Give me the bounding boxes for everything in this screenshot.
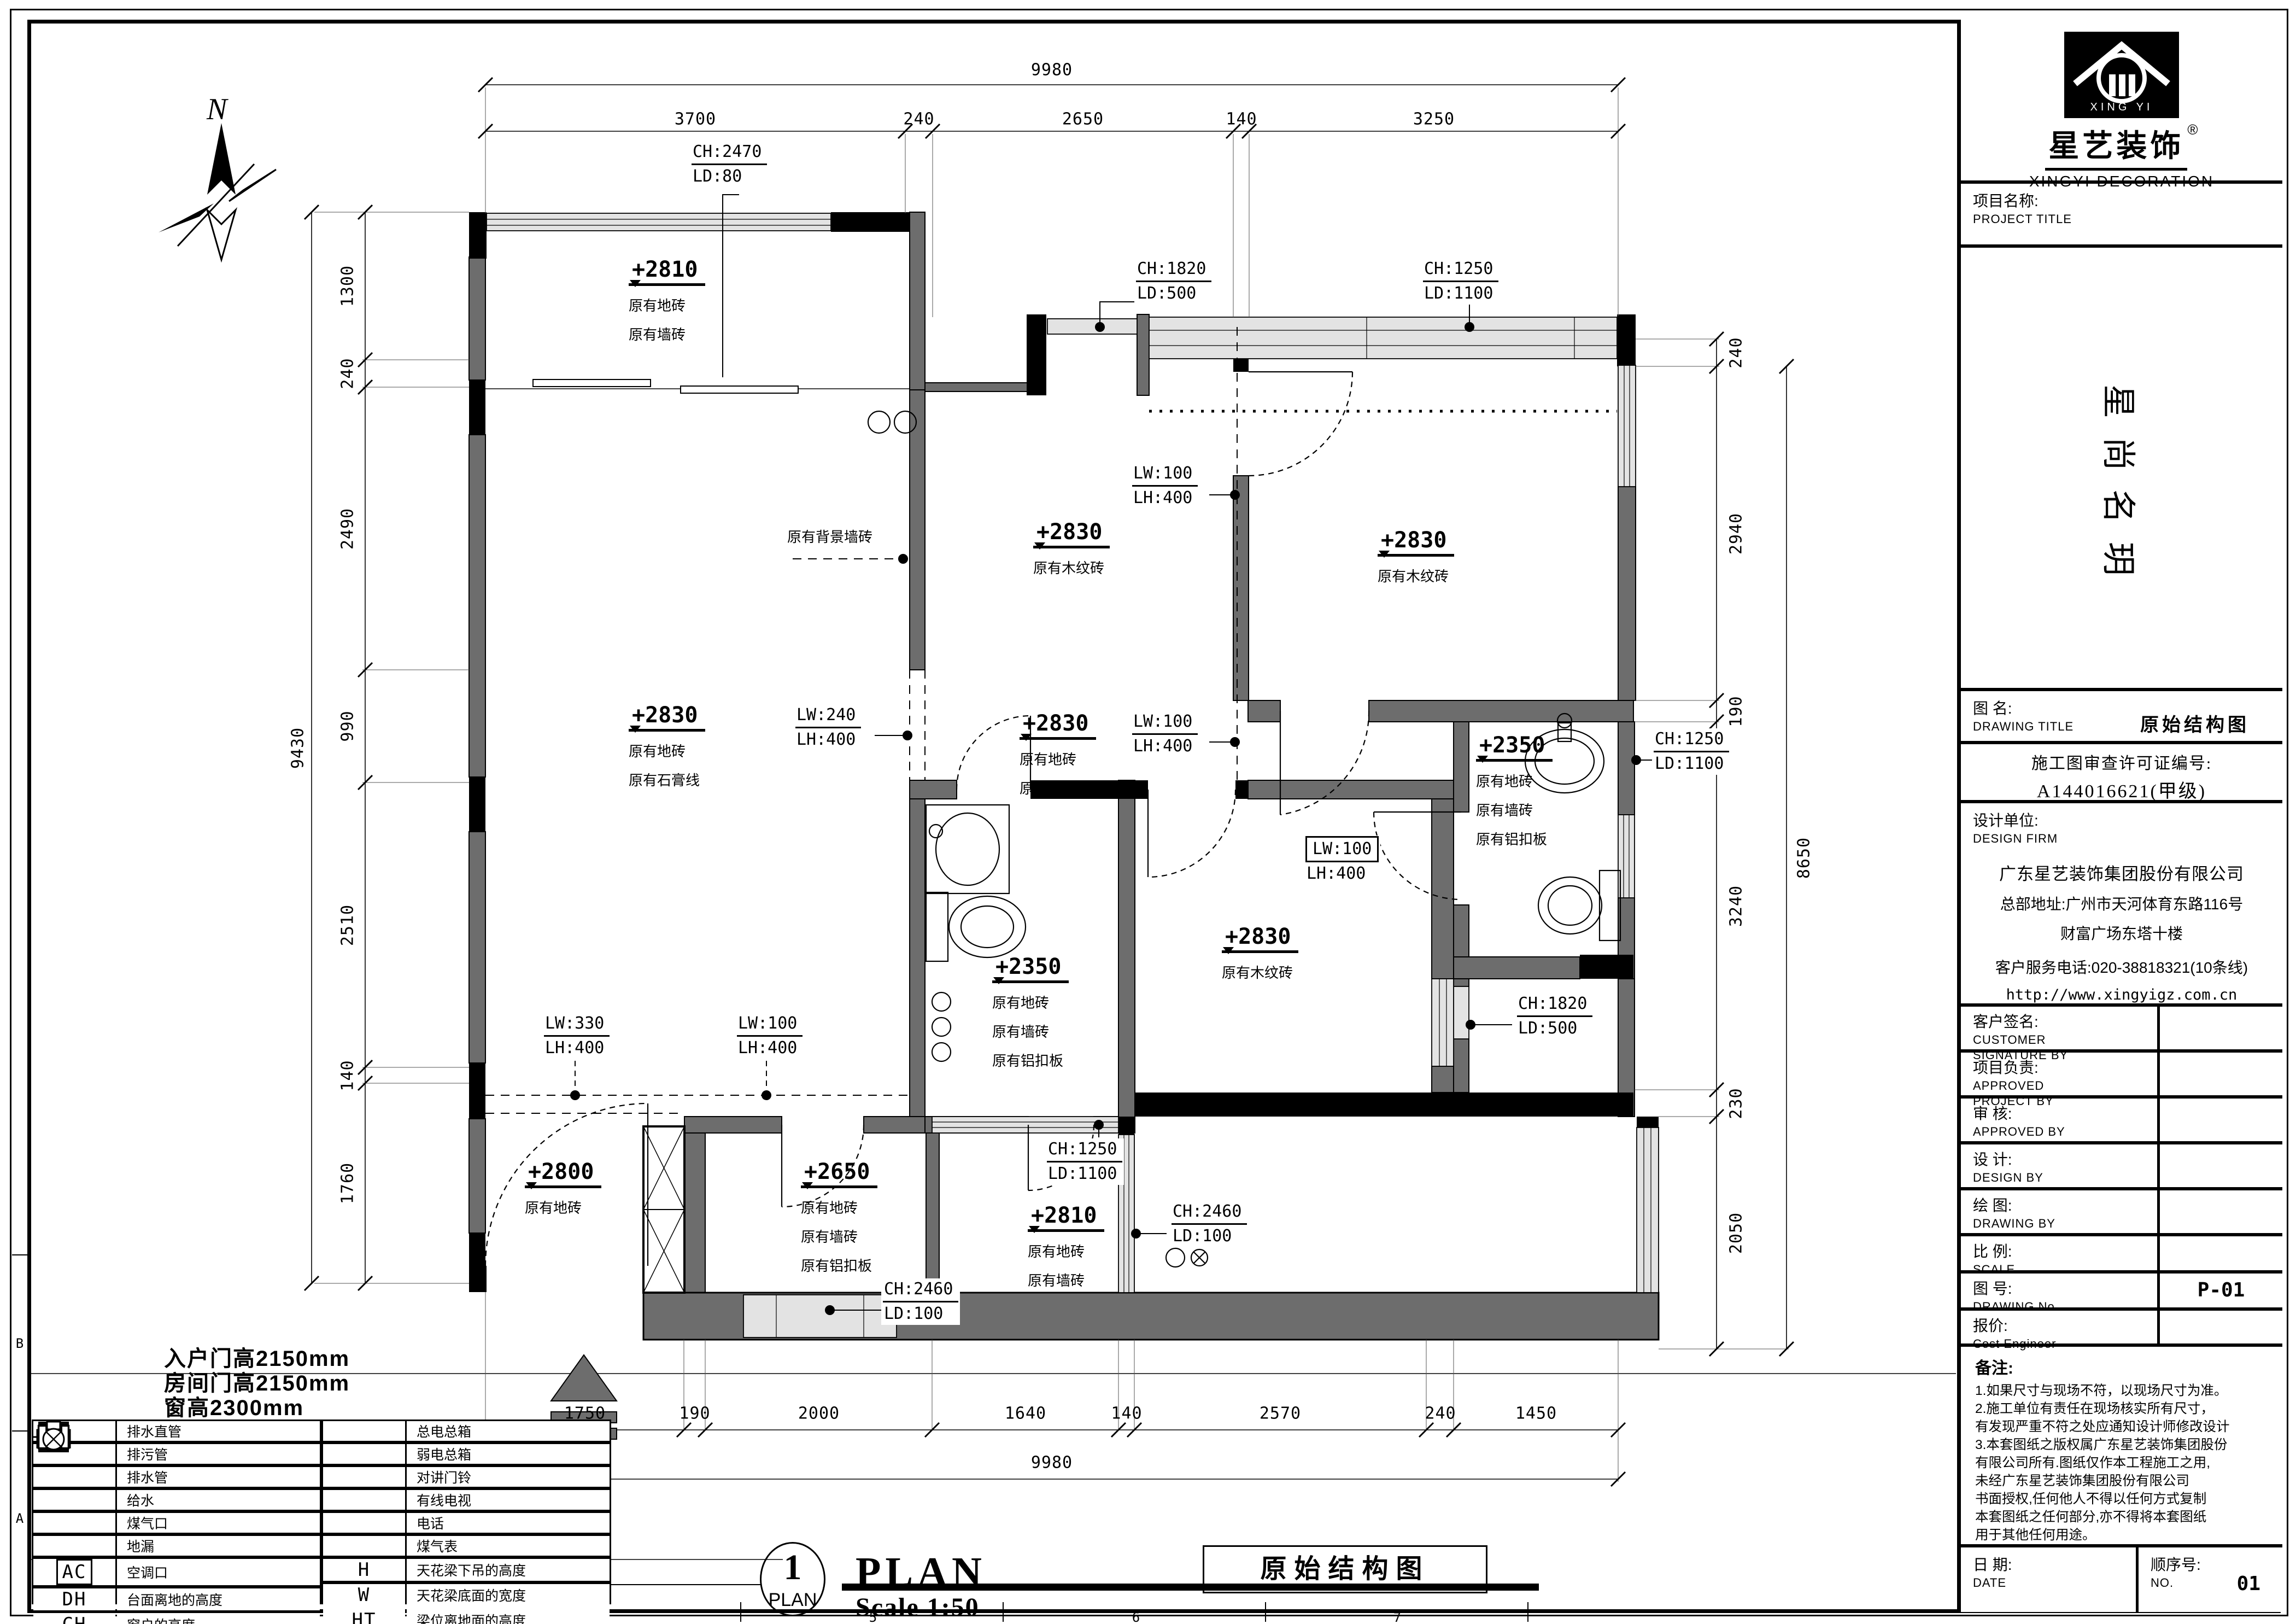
level-annotation: +2830原有地砖原有石膏线 bbox=[1020, 711, 1096, 798]
legend-label: 弱电总箱 bbox=[407, 1444, 610, 1464]
note-line: 本套图纸之任何部分,亦不得将本套图纸 bbox=[1961, 1508, 2282, 1526]
legend-label: 台面离地的高度 bbox=[117, 1588, 320, 1610]
finish-note: 原有铝扣板 bbox=[992, 1050, 1069, 1070]
company-logo-icon: XING YI bbox=[2064, 32, 2179, 118]
finish-note: 原有木纹砖 bbox=[1222, 962, 1298, 982]
title-row: 客户签名:CUSTOMERSIGNATURE BY bbox=[1961, 1007, 2282, 1053]
legend-label: 总电总箱 bbox=[407, 1421, 610, 1441]
legend-label: 煤气表 bbox=[407, 1536, 610, 1556]
legend-label: 排污管 bbox=[117, 1444, 320, 1464]
floor-plan-drawing: N 99803700240265014032501750190200016401… bbox=[0, 0, 2296, 1624]
title-row: 项目负责:APPROVEDPROJECT BY bbox=[1961, 1053, 2282, 1099]
dimension-label: 8650 bbox=[1795, 837, 1814, 879]
note-line: 1.如果尺寸与现场不符，以现场尺寸为准。 bbox=[1961, 1382, 2282, 1400]
level-annotation: +2350原有地砖原有墙砖原有铝扣板 bbox=[992, 954, 1069, 1070]
title-row: 报价:Cost Engineer bbox=[1961, 1311, 2282, 1347]
tag-top: LW:330 bbox=[544, 1013, 610, 1037]
title-row-label: 设 计:DESIGN BY bbox=[1961, 1144, 2160, 1187]
legend-row: 煤气口 bbox=[32, 1511, 321, 1534]
weak-power-box-icon bbox=[323, 1444, 405, 1464]
size-tag: CH:2470LD:80 bbox=[690, 141, 769, 188]
frame-grid-ref: 6 bbox=[1132, 1610, 1140, 1624]
dimension-label: 190 bbox=[1727, 696, 1746, 727]
dimension-label: 2050 bbox=[1727, 1212, 1746, 1254]
legend-symbol-text: H bbox=[358, 1559, 370, 1581]
finish-note: 原有铝扣板 bbox=[1476, 828, 1553, 849]
size-tag: LW:100LH:400 bbox=[1304, 836, 1380, 885]
footer-section: 日 期: DATE 顺序号: NO. 01 bbox=[1961, 1547, 2282, 1612]
finish-note: 原有墙砖 bbox=[1028, 1270, 1104, 1290]
legend-column-right: 总电总箱弱电总箱对讲门铃有线电视电话煤气表H天花梁下吊的高度W天花梁底面的宽度H… bbox=[321, 1419, 611, 1604]
size-tag: CH:1250LD:1100 bbox=[1045, 1138, 1124, 1185]
legend-row: 对讲门铃 bbox=[321, 1465, 611, 1488]
legend-label: 排水管 bbox=[117, 1467, 320, 1487]
dimension-label: 190 bbox=[679, 1404, 710, 1423]
sequence-number: 01 bbox=[2237, 1573, 2260, 1595]
legend-label: 排水直管 bbox=[117, 1421, 320, 1441]
dimension-label: 2570 bbox=[1260, 1404, 1301, 1423]
sequence-cell: 顺序号: NO. 01 bbox=[2139, 1547, 2282, 1612]
tag-top: LW:240 bbox=[795, 705, 861, 728]
title-row-value bbox=[2160, 1311, 2282, 1343]
level-annotation: +2810原有地砖原有墙砖 bbox=[629, 257, 705, 344]
project-label-cn: 项目名称: bbox=[1961, 184, 2282, 211]
tag-bottom: LH:400 bbox=[1132, 735, 1198, 757]
dimension-label: 1450 bbox=[1515, 1404, 1557, 1423]
door-height-note: 窗高2300mm bbox=[164, 1390, 304, 1422]
finish-note: 原有墙砖 bbox=[1476, 799, 1553, 820]
legend-symbol-text: AC bbox=[56, 1559, 93, 1585]
dimension-label: 2510 bbox=[338, 904, 358, 946]
note-line: 用于其他任何用途。 bbox=[1961, 1526, 2282, 1544]
title-row-label: 图 号:DRAWING No bbox=[1961, 1274, 2160, 1307]
logo-text: XING YI bbox=[2064, 101, 2179, 114]
firm-label-en: DESIGN FIRM bbox=[1961, 831, 2282, 846]
frame-grid-ref: B bbox=[16, 1336, 24, 1351]
dimension-label: 2000 bbox=[798, 1404, 840, 1423]
level-value: +2830 bbox=[1378, 528, 1454, 557]
dimension-label: 9980 bbox=[1031, 61, 1073, 80]
date-cell: 日 期: DATE bbox=[1961, 1547, 2139, 1612]
title-row-value bbox=[2160, 1190, 2282, 1233]
legend-symbol-text: DH bbox=[62, 1588, 87, 1610]
project-title-section: 项目名称: PROJECT TITLE bbox=[1961, 184, 2282, 248]
dimension-label: 1760 bbox=[338, 1162, 358, 1204]
legend-label: 窗户的高度 bbox=[117, 1614, 320, 1624]
size-tag: LW:330LH:400 bbox=[542, 1013, 611, 1059]
permit-number: A144016621(甲级) bbox=[1961, 776, 2282, 803]
title-row-label: 比 例:SCALE bbox=[1961, 1236, 2160, 1270]
finish-note: 原有墙砖 bbox=[801, 1226, 877, 1246]
dimension-label: 2940 bbox=[1727, 513, 1746, 554]
dimension-label: 9980 bbox=[1031, 1453, 1073, 1473]
tag-top: LW:100 bbox=[1132, 463, 1198, 487]
title-row-value bbox=[2160, 1236, 2282, 1270]
date-label-en: DATE bbox=[1961, 1575, 2136, 1590]
size-tag: CH:1250LD:1100 bbox=[1652, 728, 1731, 775]
legend-row: 弱电总箱 bbox=[321, 1442, 611, 1465]
legend-label: 空调口 bbox=[117, 1559, 320, 1585]
size-tag: LW:100LH:400 bbox=[1131, 711, 1199, 757]
dimension-label: 240 bbox=[1727, 337, 1746, 368]
text-symbol: H bbox=[323, 1559, 405, 1581]
note-line: 3.本套图纸之版权属广东星艺装饰集团股份 bbox=[1961, 1436, 2282, 1454]
title-row: 图 号:DRAWING NoP-01 bbox=[1961, 1274, 2282, 1311]
finish-note: 原有地砖 bbox=[629, 740, 705, 761]
dimension-label: 3250 bbox=[1413, 110, 1455, 129]
level-annotation: +2650原有地砖原有墙砖原有铝扣板 bbox=[801, 1159, 877, 1275]
title-row-value bbox=[2160, 1144, 2282, 1187]
finish-note: 原有地砖 bbox=[801, 1197, 877, 1217]
tag-bottom: LD:100 bbox=[883, 1302, 958, 1324]
legend-row: H天花梁下吊的高度 bbox=[321, 1557, 611, 1582]
title-row: 审 核:APPROVED BY bbox=[1961, 1099, 2282, 1144]
legend-table: 排水直管排污管排水管给水煤气口地漏AC空调口DH台面离地的高度CH窗户的高度 总… bbox=[32, 1419, 611, 1604]
text-symbol: W bbox=[323, 1584, 405, 1606]
plan-scale: Scale 1:50 bbox=[856, 1592, 980, 1622]
size-tag: LW:100LH:400 bbox=[735, 1013, 804, 1059]
text-symbol: CH bbox=[33, 1614, 115, 1624]
firm-company-name: 广东星艺装饰集团股份有限公司 bbox=[1961, 860, 2282, 885]
legend-label: 有线电视 bbox=[407, 1490, 610, 1510]
dimension-label: 240 bbox=[338, 358, 358, 389]
tag-bottom: LD:1100 bbox=[1423, 282, 1498, 304]
legend-label: 天花梁底面的宽度 bbox=[407, 1584, 610, 1606]
finish-note: 原有墙砖 bbox=[629, 324, 705, 344]
tag-top: LW:100 bbox=[1305, 836, 1379, 862]
level-value: +2830 bbox=[629, 703, 705, 732]
dimension-label: 2650 bbox=[1062, 110, 1104, 129]
tag-top: CH:1250 bbox=[1654, 729, 1729, 752]
project-name-vertical: 星尚名玥 bbox=[2097, 384, 2146, 594]
level-value: +2810 bbox=[629, 257, 705, 286]
size-tag: LW:240LH:400 bbox=[794, 704, 863, 751]
level-value: +2350 bbox=[992, 954, 1069, 983]
title-row-label: 审 核:APPROVED BY bbox=[1961, 1099, 2160, 1141]
notes-label: 备注: bbox=[1961, 1347, 2282, 1382]
tag-top: LW:100 bbox=[737, 1013, 803, 1037]
finish-note: 原有木纹砖 bbox=[1033, 557, 1110, 577]
finish-note: 原有地砖 bbox=[1028, 1241, 1104, 1261]
plan-title-cn: 原始结构图 bbox=[1203, 1545, 1487, 1593]
dimension-label: 140 bbox=[1111, 1404, 1142, 1423]
legend-label: 地漏 bbox=[117, 1536, 320, 1556]
note-line: 有限公司所有.图纸仅作本工程施工之用, bbox=[1961, 1454, 2282, 1472]
title-block: XING YI 星艺装饰® XINGYI DECORATION 项目名称: PR… bbox=[1957, 20, 2282, 1612]
legend-symbol-text: HT bbox=[352, 1609, 377, 1624]
date-label-cn: 日 期: bbox=[1961, 1547, 2136, 1575]
design-firm-section: 设计单位: DESIGN FIRM 广东星艺装饰集团股份有限公司 总部地址:广州… bbox=[1961, 803, 2282, 1007]
level-value: +2830 bbox=[1033, 519, 1110, 548]
title-row-label: 绘 图:DRAWING BY bbox=[1961, 1190, 2160, 1233]
level-value: +2800 bbox=[525, 1159, 601, 1188]
tag-bottom: LD:500 bbox=[1136, 282, 1211, 304]
legend-row: W天花梁底面的宽度 bbox=[321, 1582, 611, 1608]
level-annotation: +2350原有地砖原有墙砖原有铝扣板 bbox=[1476, 733, 1553, 849]
finish-note: 原有石膏线 bbox=[629, 769, 705, 790]
legend-symbol-text: W bbox=[358, 1584, 370, 1606]
cable-tv-icon bbox=[323, 1490, 405, 1510]
permit-label: 施工图审查许可证编号: bbox=[1961, 750, 2282, 774]
size-tag: CH:2460LD:100 bbox=[881, 1278, 960, 1325]
tag-bottom: LH:400 bbox=[1305, 862, 1379, 884]
note-line: 有发现严重不符之处应通知设计师修改设计 bbox=[1961, 1418, 2282, 1436]
drain-pipe-icon bbox=[33, 1467, 115, 1487]
title-row-value bbox=[2160, 1053, 2282, 1095]
tag-top: CH:2460 bbox=[883, 1279, 958, 1302]
legend-row: 煤气表 bbox=[321, 1534, 611, 1557]
legend-row: 排水管 bbox=[32, 1465, 321, 1488]
tag-bottom: LH:400 bbox=[795, 728, 861, 750]
finish-note: 原有地砖 bbox=[992, 992, 1069, 1012]
title-block-logo-section: XING YI 星艺装饰® XINGYI DECORATION bbox=[1961, 20, 2282, 184]
title-row-label: 客户签名:CUSTOMERSIGNATURE BY bbox=[1961, 1007, 2160, 1049]
legend-label: 对讲门铃 bbox=[407, 1467, 610, 1487]
legend-label: 给水 bbox=[117, 1490, 320, 1510]
tag-bottom: LD:500 bbox=[1517, 1017, 1592, 1039]
level-annotation: +2800原有地砖 bbox=[525, 1159, 601, 1217]
tag-top: CH:1250 bbox=[1047, 1139, 1122, 1162]
finish-note: 原有铝扣板 bbox=[801, 1255, 877, 1275]
firm-label-cn: 设计单位: bbox=[1961, 803, 2282, 831]
drawing-title-section: 图 名: DRAWING TITLE 原始结构图 bbox=[1961, 691, 2282, 744]
size-tag: CH:1820LD:500 bbox=[1515, 993, 1594, 1039]
tag-bottom: LD:100 bbox=[1172, 1225, 1247, 1247]
frame-grid-ref: A bbox=[16, 1511, 24, 1526]
dimension-label: 3240 bbox=[1727, 885, 1746, 927]
dimension-label: 2490 bbox=[338, 508, 358, 550]
floor-drain-icon bbox=[33, 1536, 115, 1556]
tag-bottom: LD:1100 bbox=[1047, 1162, 1122, 1184]
level-annotation: +2830原有木纹砖 bbox=[1222, 924, 1298, 982]
dimension-label: 240 bbox=[1425, 1404, 1456, 1423]
plan-title: PLAN bbox=[856, 1549, 986, 1596]
finish-note: 原有墙砖 bbox=[992, 1021, 1069, 1041]
legend-row: HT梁位离地面的高度 bbox=[321, 1608, 611, 1624]
title-row-label: 报价:Cost Engineer bbox=[1961, 1311, 2160, 1343]
notes-body: 1.如果尺寸与现场不符，以现场尺寸为准。2.施工单位有责任在现场核实所有尺寸，有… bbox=[1961, 1382, 2282, 1544]
note-line: 书面授权,任何他人不得以任何方式复制 bbox=[1961, 1490, 2282, 1508]
intercom-doorbell-icon bbox=[323, 1467, 405, 1487]
project-name-section: 星尚名玥 bbox=[1961, 248, 2282, 691]
legend-row: CH窗户的高度 bbox=[32, 1612, 321, 1624]
dimension-label: 3700 bbox=[675, 110, 716, 129]
level-value: +2830 bbox=[1222, 924, 1298, 953]
firm-address-1: 总部地址:广州市天河体育东路116号 bbox=[1961, 892, 2282, 914]
size-tag: CH:1250LD:1100 bbox=[1421, 258, 1500, 305]
frame-grid-ref: 7 bbox=[1393, 1610, 1401, 1624]
permit-section: 施工图审查许可证编号: A144016621(甲级) bbox=[1961, 744, 2282, 803]
brand-name-cn: 星艺装饰 bbox=[2045, 121, 2187, 171]
dimension-label: 9430 bbox=[289, 727, 308, 769]
tag-bottom: LH:400 bbox=[737, 1037, 803, 1059]
plan-callout: 1 PLAN bbox=[760, 1542, 825, 1616]
title-row-value bbox=[2160, 1007, 2282, 1049]
title-row-value: P-01 bbox=[2160, 1274, 2282, 1307]
tag-top: CH:2460 bbox=[1172, 1201, 1247, 1225]
legend-label: 煤气口 bbox=[117, 1513, 320, 1533]
legend-row: 有线电视 bbox=[321, 1488, 611, 1511]
wall-note: 原有背景墙砖 bbox=[787, 526, 872, 546]
notes-section: 备注: 1.如果尺寸与现场不符，以现场尺寸为准。2.施工单位有责任在现场核实所有… bbox=[1961, 1347, 2282, 1547]
drawing-title-value: 原始结构图 bbox=[2140, 710, 2250, 737]
tag-top: LW:100 bbox=[1132, 711, 1198, 735]
legend-symbol-text: CH bbox=[62, 1614, 87, 1624]
plan-number: 1 bbox=[762, 1547, 824, 1588]
finish-note: 原有地砖 bbox=[525, 1197, 601, 1217]
dimension-label: 140 bbox=[338, 1060, 358, 1091]
dimension-label: 240 bbox=[903, 110, 934, 129]
gas-outlet-icon bbox=[33, 1513, 115, 1533]
dimension-label: 1300 bbox=[338, 265, 358, 307]
dimension-label: 990 bbox=[338, 710, 358, 741]
water-supply-icon bbox=[33, 1490, 115, 1510]
note-line: 2.施工单位有责任在现场核实所有尺寸， bbox=[1961, 1400, 2282, 1418]
level-value: +2830 bbox=[1020, 711, 1096, 740]
legend-row: 给水 bbox=[32, 1488, 321, 1511]
signature-rows: 客户签名:CUSTOMERSIGNATURE BY项目负责:APPROVEDPR… bbox=[1961, 1007, 2282, 1347]
size-tag: LW:100LH:400 bbox=[1131, 463, 1199, 509]
legend-label: 天花梁下吊的高度 bbox=[407, 1559, 610, 1581]
level-annotation: +2830原有木纹砖 bbox=[1033, 519, 1110, 577]
tag-bottom: LD:1100 bbox=[1654, 752, 1729, 774]
registered-mark: ® bbox=[2187, 121, 2198, 138]
firm-address-2: 财富广场东塔十楼 bbox=[1961, 922, 2282, 944]
title-row: 比 例:SCALE bbox=[1961, 1236, 2282, 1274]
finish-note: 原有木纹砖 bbox=[1378, 565, 1454, 586]
tag-bottom: LH:400 bbox=[544, 1037, 610, 1059]
level-annotation: +2830原有地砖原有石膏线 bbox=[629, 703, 705, 790]
finish-note: 原有地砖 bbox=[1476, 770, 1553, 791]
ac-outlet-icon: AC bbox=[33, 1559, 115, 1585]
size-tag: CH:1820LD:500 bbox=[1134, 258, 1213, 305]
seq-label-en: NO. bbox=[2139, 1575, 2282, 1590]
gas-meter-icon bbox=[323, 1536, 405, 1556]
project-label-en: PROJECT TITLE bbox=[1961, 211, 2282, 226]
dimension-label: 230 bbox=[1727, 1088, 1746, 1119]
title-row: 设 计:DESIGN BY bbox=[1961, 1144, 2282, 1190]
legend-row: AC空调口 bbox=[32, 1557, 321, 1587]
title-row-value bbox=[2160, 1099, 2282, 1141]
main-power-box-icon bbox=[323, 1421, 405, 1441]
tag-top: CH:1820 bbox=[1517, 994, 1592, 1017]
level-value: +2350 bbox=[1476, 733, 1553, 762]
dimension-label: 1640 bbox=[1005, 1404, 1046, 1423]
tag-bottom: LH:400 bbox=[1132, 487, 1198, 509]
legend-label: 梁位离地面的高度 bbox=[407, 1609, 610, 1624]
legend-row: 总电总箱 bbox=[321, 1419, 611, 1442]
text-symbol: HT bbox=[323, 1609, 405, 1624]
level-annotation: +2830原有木纹砖 bbox=[1378, 528, 1454, 586]
text-symbol: DH bbox=[33, 1588, 115, 1610]
firm-website: http://www.xingyigz.com.cn bbox=[1961, 986, 2282, 1003]
firm-phone: 客户服务电话:020-38818321(10条线) bbox=[1961, 956, 2282, 978]
north-label: N bbox=[207, 92, 227, 127]
dimension-label: 140 bbox=[1226, 110, 1257, 129]
tag-bottom: LD:80 bbox=[692, 165, 767, 187]
level-value: +2810 bbox=[1028, 1203, 1104, 1232]
tag-top: CH:2470 bbox=[692, 142, 767, 165]
plan-sub-label: PLAN bbox=[762, 1590, 824, 1611]
title-row: 绘 图:DRAWING BY bbox=[1961, 1190, 2282, 1236]
size-tag: CH:2460LD:100 bbox=[1170, 1201, 1249, 1247]
tag-top: CH:1250 bbox=[1423, 259, 1498, 282]
legend-row: 地漏 bbox=[32, 1534, 321, 1557]
finish-note: 原有地砖 bbox=[1020, 749, 1096, 769]
level-annotation: +2810原有地砖原有墙砖 bbox=[1028, 1203, 1104, 1290]
title-row-label: 项目负责:APPROVEDPROJECT BY bbox=[1961, 1053, 2160, 1095]
note-line: 未经广东星艺装饰集团股份有限公司 bbox=[1961, 1472, 2282, 1490]
finish-note: 原有地砖 bbox=[629, 295, 705, 315]
legend-row: DH台面离地的高度 bbox=[32, 1587, 321, 1612]
telephone-icon bbox=[323, 1513, 405, 1533]
seq-label-cn: 顺序号: bbox=[2139, 1547, 2282, 1575]
legend-label: 电话 bbox=[407, 1513, 610, 1533]
tag-top: CH:1820 bbox=[1136, 259, 1211, 282]
legend-row: 电话 bbox=[321, 1511, 611, 1534]
finish-note: 原有石膏线 bbox=[1020, 778, 1096, 798]
level-value: +2650 bbox=[801, 1159, 877, 1188]
